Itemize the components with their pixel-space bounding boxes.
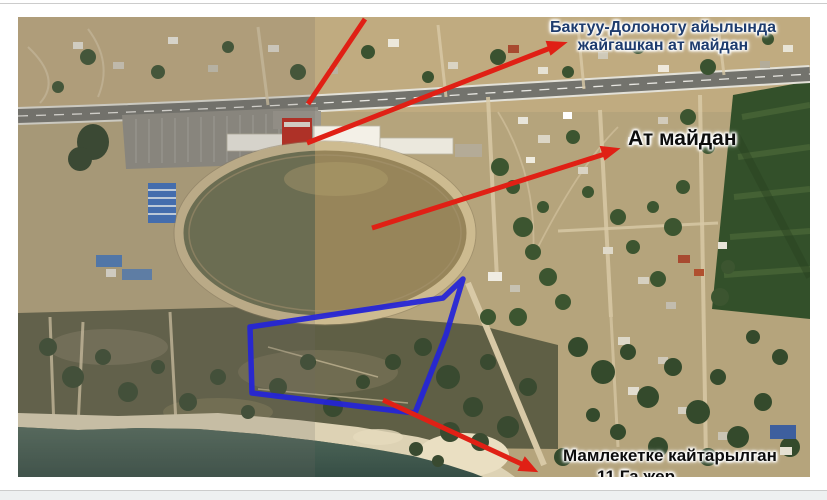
page-bottom-strip (0, 491, 827, 500)
village-title-line1: Бактуу-Долоноту айылында (550, 19, 776, 36)
imagery-seam (18, 17, 315, 477)
photo-container: Бактуу-Долоноту айылында жайгашкан ат ма… (18, 17, 810, 477)
satellite-image (18, 17, 810, 477)
returned-land-label: Мамлекетке кайтарылган 11 Га жер (563, 445, 777, 477)
village-title-line2: жайгашкан ат майдан (578, 37, 748, 54)
page-frame: Бактуу-Долоноту айылында жайгашкан ат ма… (0, 0, 827, 500)
at-maidan-label: Ат майдан (628, 127, 737, 151)
village-title-label: Бактуу-Долоноту айылында жайгашкан ат ма… (550, 19, 776, 55)
page-top-border (0, 3, 827, 4)
returned-land-line1: Мамлекетке кайтарылган (563, 446, 777, 465)
returned-land-line2-partial: 11 Га жер (597, 466, 777, 477)
